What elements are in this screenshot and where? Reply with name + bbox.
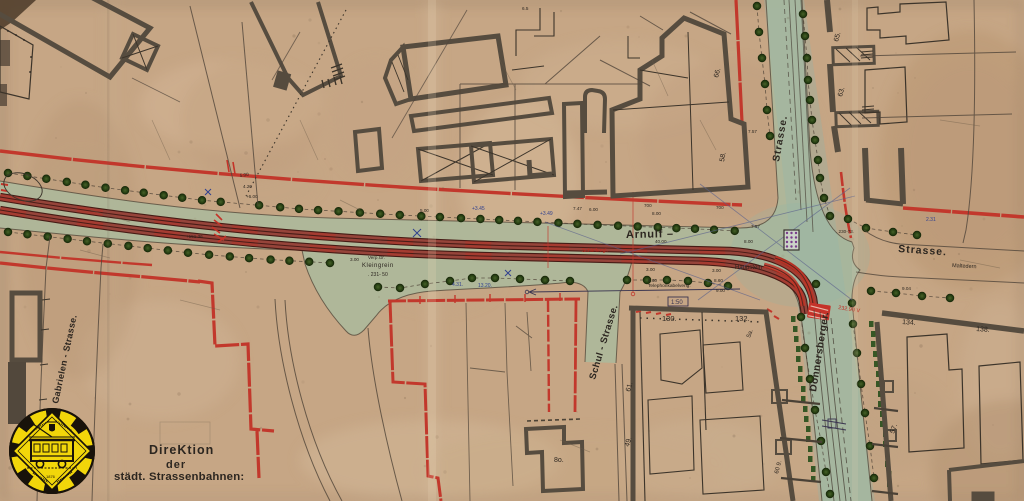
svg-text:städt. Strassenbahnen:: städt. Strassenbahnen: xyxy=(114,471,244,483)
svg-text:Verp.Gr.: Verp.Gr. xyxy=(368,255,385,260)
svg-text:+151.36: +151.36 xyxy=(186,234,203,239)
svg-text:Maltedern: Maltedern xyxy=(952,263,977,270)
svg-text:134.: 134. xyxy=(902,319,916,327)
svg-text:3.00: 3.00 xyxy=(646,267,655,272)
svg-text:Telephonkabelverlg.: Telephonkabelverlg. xyxy=(648,283,691,289)
svg-text:. 231- 50: . 231- 50 xyxy=(368,272,388,278)
svg-text:1876: 1876 xyxy=(46,474,56,479)
svg-text:13.20.: 13.20. xyxy=(478,283,492,289)
svg-text:3.00: 3.00 xyxy=(350,257,359,262)
svg-text:700: 700 xyxy=(644,203,652,208)
svg-text:5.00: 5.00 xyxy=(420,208,429,213)
svg-text:6.00: 6.00 xyxy=(589,207,598,212)
svg-text:+3.45: +3.45 xyxy=(472,206,485,212)
svg-text:132.: 132. xyxy=(735,314,750,323)
svg-text:+6.00: +6.00 xyxy=(246,194,258,199)
svg-text:8o.: 8o. xyxy=(554,457,564,464)
svg-text:130.: 130. xyxy=(662,314,677,323)
svg-text:3.00: 3.00 xyxy=(712,268,721,273)
svg-text:8.60: 8.60 xyxy=(648,278,657,283)
svg-text:9.04: 9.04 xyxy=(902,286,911,291)
svg-text:700: 700 xyxy=(716,205,724,210)
svg-text:. 230-73.: . 230-73. xyxy=(836,229,854,234)
svg-text:8.60: 8.60 xyxy=(714,278,723,283)
svg-text:138.: 138. xyxy=(976,326,990,334)
svg-text:6.5: 6.5 xyxy=(522,6,529,11)
svg-text:+3.49: +3.49 xyxy=(540,211,553,217)
svg-text:9.00: 9.00 xyxy=(716,288,725,293)
svg-text:8.00: 8.00 xyxy=(652,211,661,216)
svg-text:DireKtion: DireKtion xyxy=(149,443,214,457)
svg-text:1:50: 1:50 xyxy=(671,300,683,306)
svg-text:40.00: 40.00 xyxy=(655,239,667,244)
svg-text:7.47: 7.47 xyxy=(573,206,582,211)
svg-text:4.31.: 4.31. xyxy=(452,282,463,288)
svg-text:8.00: 8.00 xyxy=(744,239,753,244)
svg-text:Schleifengl.: Schleifengl. xyxy=(582,248,608,254)
svg-text:2.31: 2.31 xyxy=(926,217,936,223)
svg-text:Haupstein: Haupstein xyxy=(735,265,762,271)
svg-text:Arnulf –: Arnulf – xyxy=(626,228,674,241)
svg-text:7.57: 7.57 xyxy=(751,224,760,229)
svg-text:der: der xyxy=(166,459,186,471)
svg-text:7.57: 7.57 xyxy=(748,129,757,134)
svg-text:Kleingrein: Kleingrein xyxy=(362,263,394,269)
svg-text:4.20: 4.20 xyxy=(243,184,252,189)
